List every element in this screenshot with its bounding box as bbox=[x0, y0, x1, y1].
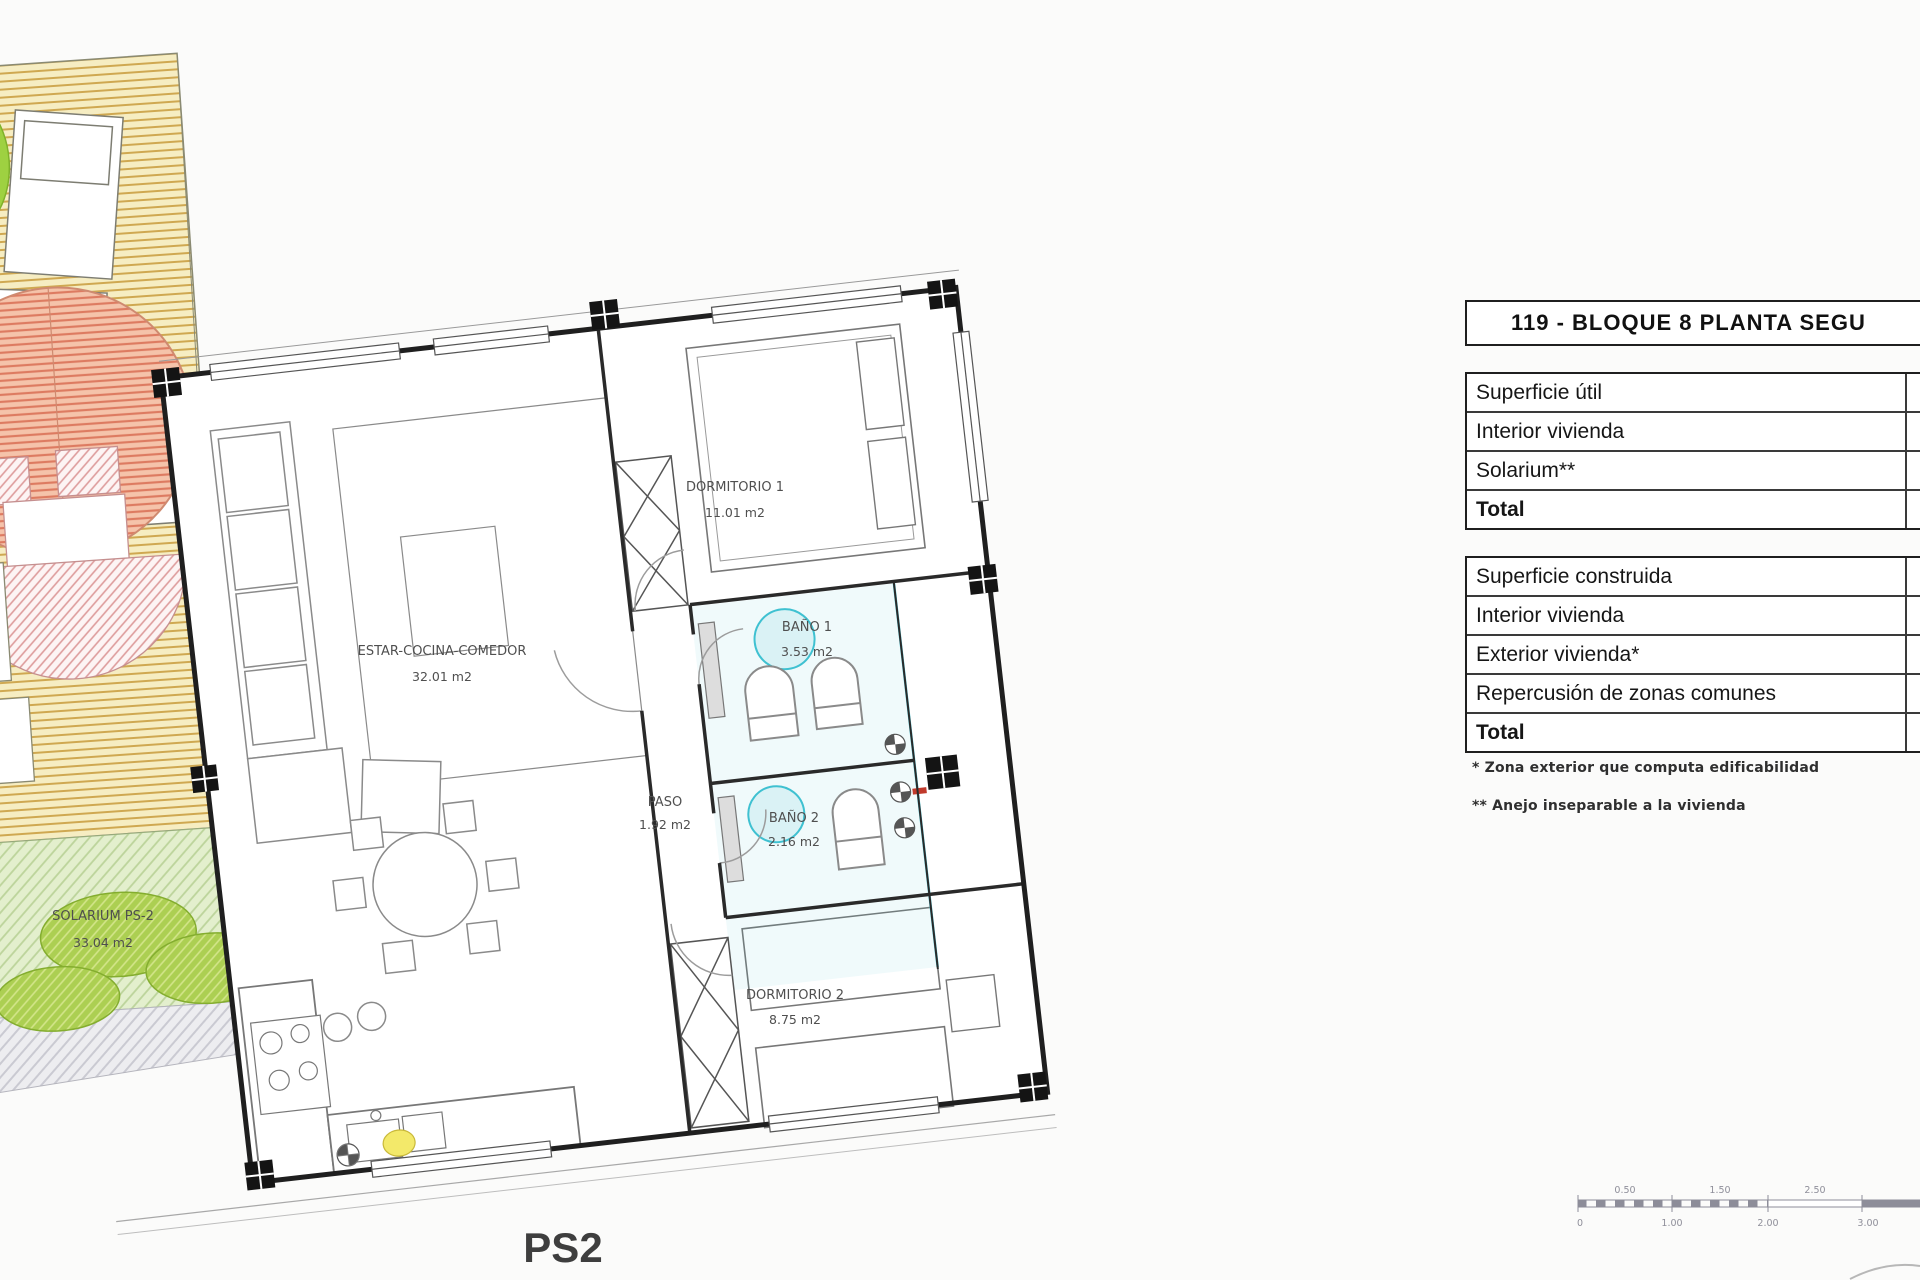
plan-title-bar: 119 - BLOQUE 8 PLANTA SEGU bbox=[1465, 300, 1920, 346]
table-row: Interior vivienda bbox=[1467, 597, 1920, 636]
room-label-bano-2: BAÑO 2 bbox=[769, 810, 819, 826]
room-area-estar: 32.01 m2 bbox=[412, 669, 472, 684]
scale-tick-label: 1.00 bbox=[1661, 1218, 1682, 1229]
table-row-total: Total bbox=[1467, 714, 1920, 751]
table-superficie-construida: Superficie construida Interior vivienda … bbox=[1465, 556, 1920, 753]
coffee-table bbox=[401, 526, 509, 656]
room-area-paso: 1.92 m2 bbox=[639, 817, 691, 832]
room-area-dormitorio-1: 11.01 m2 bbox=[705, 505, 765, 520]
room-label-solarium: SOLARIUM PS-2 bbox=[52, 909, 154, 924]
bed-1 bbox=[686, 324, 925, 572]
table-row: Repercusión de zonas comunes bbox=[1467, 675, 1920, 714]
scale-bar: 0.50 1.50 2.50 0 1.00 2.00 3.00 bbox=[1577, 1185, 1920, 1229]
room-label-estar: ESTAR-COCINA-COMEDOR bbox=[358, 644, 527, 659]
scale-tick-label: 2.00 bbox=[1757, 1218, 1778, 1229]
scale-tick-label: 3.00 bbox=[1857, 1218, 1878, 1229]
room-area-bano-2: 2.16 m2 bbox=[768, 834, 820, 849]
room-area-bano-1: 3.53 m2 bbox=[781, 644, 833, 659]
faucet bbox=[370, 1110, 381, 1121]
planter-box bbox=[0, 697, 34, 787]
room-label-paso: PASO bbox=[648, 795, 682, 810]
corner-fragment bbox=[1850, 1265, 1920, 1279]
table-row: Solarium** bbox=[1467, 452, 1920, 491]
footnote-1: * Zona exterior que computa edificabilid… bbox=[1472, 760, 1819, 776]
scale-tick-label: 2.50 bbox=[1804, 1185, 1825, 1196]
sheet-label-ps2: PS2 bbox=[523, 1224, 602, 1271]
room-area-dormitorio-2: 8.75 m2 bbox=[769, 1012, 821, 1027]
table-row: Interior vivienda bbox=[1467, 413, 1920, 452]
table-row: Exterior vivienda* bbox=[1467, 636, 1920, 675]
table-superficie-util: Superficie útil Interior vivienda Solari… bbox=[1465, 372, 1920, 530]
scale-tick-label: 1.50 bbox=[1709, 1185, 1730, 1196]
room-label-bano-1: BAÑO 1 bbox=[782, 619, 832, 635]
table-header: Superficie útil bbox=[1467, 374, 1920, 413]
stove bbox=[251, 1015, 331, 1114]
table-row-total: Total bbox=[1467, 491, 1920, 528]
room-label-dormitorio-2: DORMITORIO 2 bbox=[746, 988, 844, 1003]
room-area-solarium: 33.04 m2 bbox=[73, 935, 133, 950]
scale-tick-label: 0 bbox=[1577, 1218, 1583, 1229]
sofa-corner bbox=[248, 748, 352, 843]
drawing-sheet: DORMITORIO 1 11.01 m2 BAÑO 1 3.53 m2 EST… bbox=[0, 0, 1920, 1280]
footnote-2: ** Anejo inseparable a la vivienda bbox=[1472, 798, 1746, 814]
table-header: Superficie construida bbox=[1467, 558, 1920, 597]
scale-tick-label: 0.50 bbox=[1614, 1185, 1635, 1196]
room-label-dormitorio-1: DORMITORIO 1 bbox=[686, 480, 784, 495]
nightstand bbox=[946, 975, 1000, 1032]
